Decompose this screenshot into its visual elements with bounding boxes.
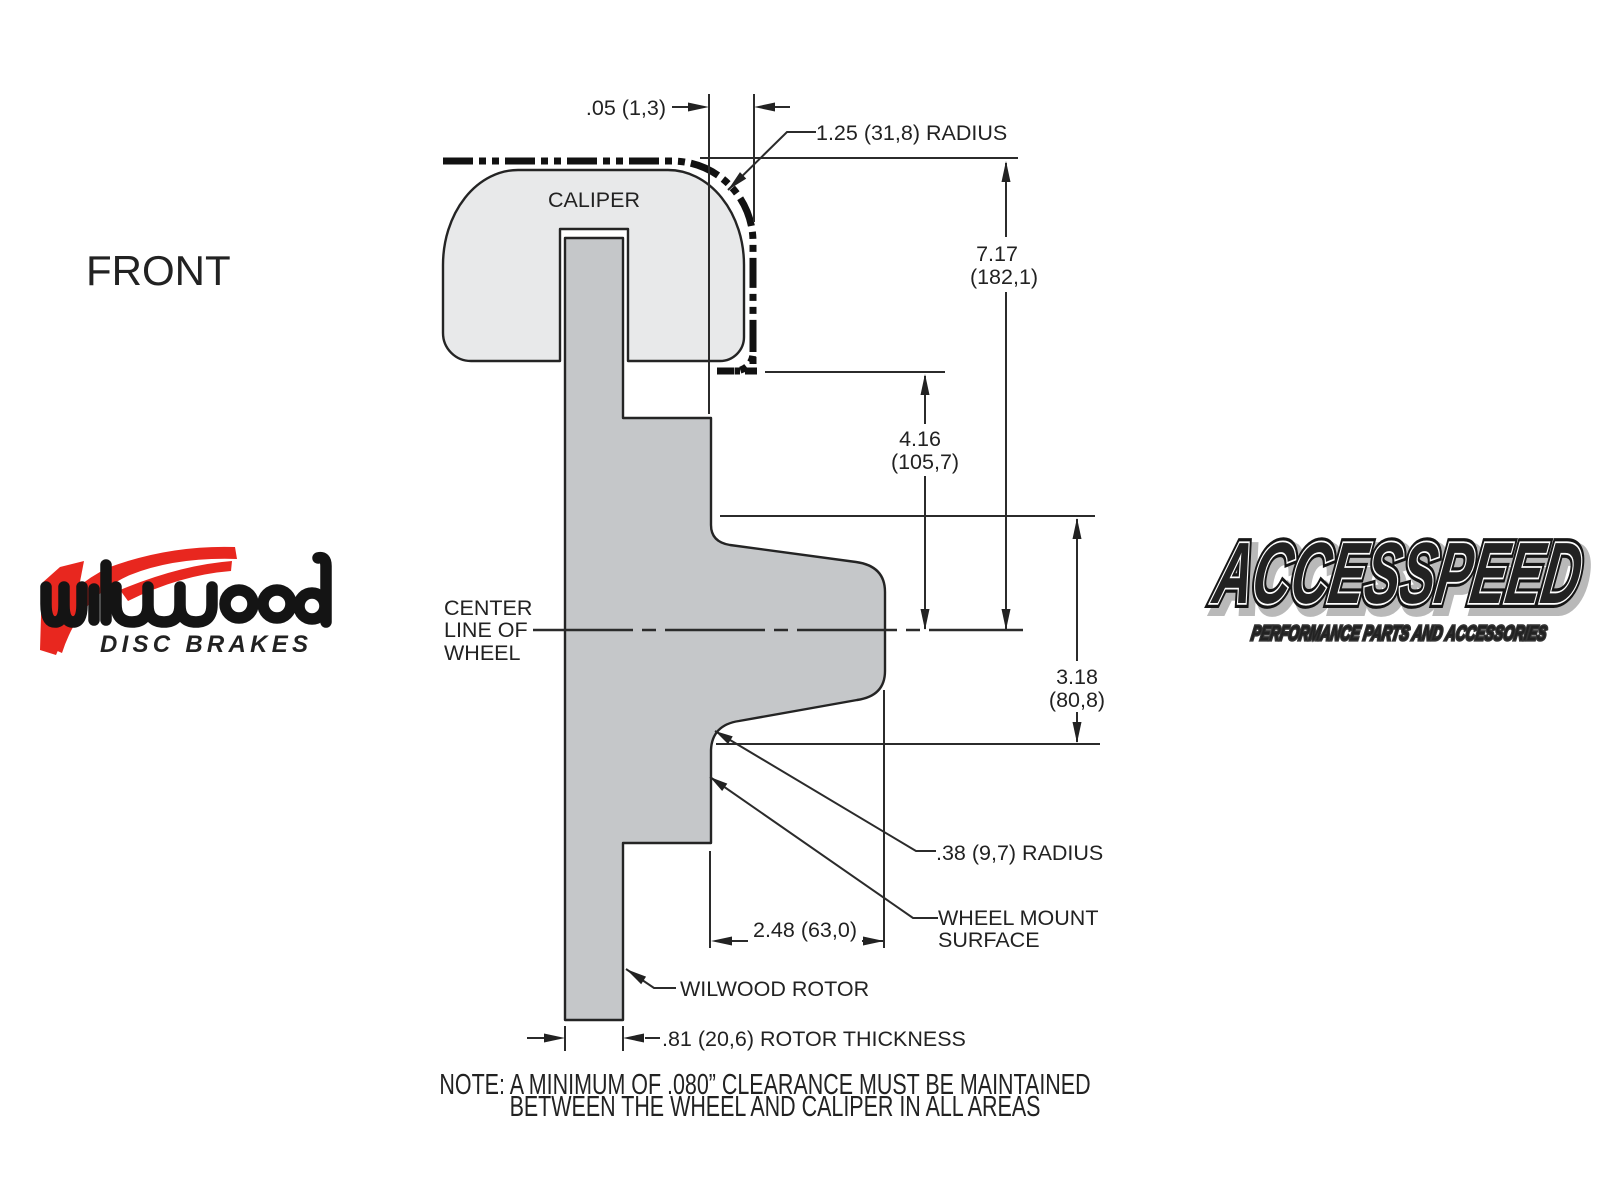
svg-text:SURFACE: SURFACE <box>938 928 1040 952</box>
svg-text:DISC BRAKES: DISC BRAKES <box>100 631 310 658</box>
svg-text:(80,8): (80,8) <box>1049 688 1105 712</box>
svg-text:CALIPER: CALIPER <box>548 188 640 212</box>
svg-text:CENTER: CENTER <box>444 596 532 620</box>
svg-text:4.16: 4.16 <box>899 427 941 451</box>
svg-text:3.18: 3.18 <box>1056 665 1098 689</box>
svg-text:2.48 (63,0): 2.48 (63,0) <box>753 918 857 942</box>
svg-text:1.25 (31,8) RADIUS: 1.25 (31,8) RADIUS <box>816 121 1007 145</box>
svg-text:LINE OF: LINE OF <box>444 618 528 642</box>
svg-text:WHEEL: WHEEL <box>444 641 521 665</box>
svg-text:WILWOOD ROTOR: WILWOOD ROTOR <box>680 977 869 1001</box>
svg-text:WHEEL MOUNT: WHEEL MOUNT <box>938 906 1098 930</box>
svg-text:FRONT: FRONT <box>86 247 231 294</box>
svg-text:7.17: 7.17 <box>976 242 1018 266</box>
svg-text:BETWEEN THE WHEEL AND CALIPER: BETWEEN THE WHEEL AND CALIPER IN ALL ARE… <box>510 1091 1041 1123</box>
svg-text:(182,1): (182,1) <box>970 265 1038 289</box>
svg-text:PERFORMANCE PARTS AND ACCESSOR: PERFORMANCE PARTS AND ACCESSORIES <box>1250 621 1549 644</box>
svg-text:(105,7): (105,7) <box>891 450 959 474</box>
svg-text:.81 (20,6) ROTOR THICKNESS: .81 (20,6) ROTOR THICKNESS <box>662 1027 966 1051</box>
svg-text:ACCESSPEED: ACCESSPEED <box>1207 525 1589 622</box>
svg-text:.38 (9,7) RADIUS: .38 (9,7) RADIUS <box>936 841 1103 865</box>
svg-text:.05 (1,3): .05 (1,3) <box>586 96 666 120</box>
